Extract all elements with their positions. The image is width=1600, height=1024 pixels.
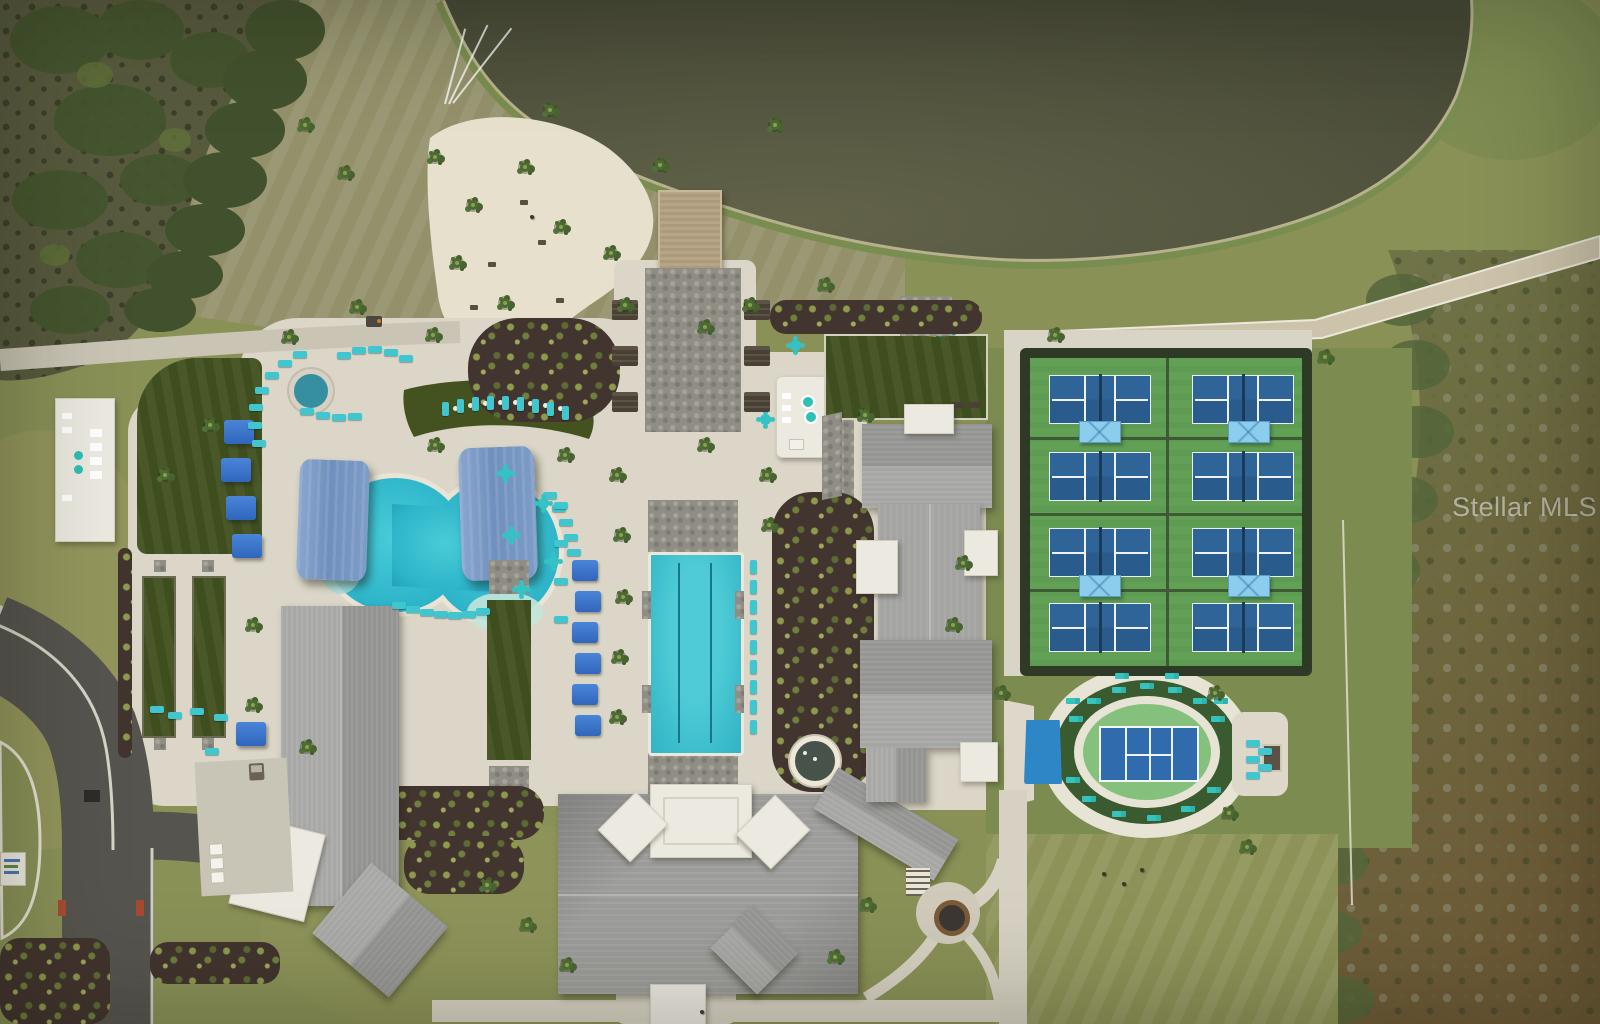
net-line (1099, 374, 1102, 425)
teal-lounger (476, 608, 490, 615)
stadium-seat (1069, 716, 1078, 722)
palm-tree (820, 280, 830, 290)
palm-tree (762, 470, 772, 480)
pickleball-court (1192, 452, 1294, 501)
lap-lane-line (710, 563, 712, 743)
kitchen-line (1227, 376, 1229, 423)
table-set (516, 584, 527, 595)
teal-lounger (502, 396, 509, 410)
teal-lounger (249, 404, 263, 411)
palm-tree (1242, 842, 1252, 852)
pool-daybed (572, 684, 598, 705)
center-line (1116, 399, 1148, 401)
palm-tree (830, 952, 840, 962)
teal-lounger (750, 580, 757, 594)
stadium-seat (1082, 796, 1091, 802)
rooftop-lounger (90, 457, 102, 465)
rooftop-umbrella (74, 465, 83, 474)
pool-daybed (575, 653, 601, 674)
teal-lounger (750, 680, 757, 694)
pavilion-lounger (782, 393, 791, 399)
stadium-seat (1066, 698, 1075, 704)
pickleball-court (1049, 603, 1151, 652)
roof-ridge (558, 894, 858, 896)
palm-tree (612, 470, 622, 480)
stadium-seat (1087, 698, 1096, 704)
equipment-unit (210, 857, 225, 870)
palm-tree (612, 712, 622, 722)
planter (202, 560, 214, 572)
teal-lounger (554, 502, 568, 509)
net-line (1099, 527, 1102, 578)
stadium-seat (1214, 698, 1223, 704)
teal-lounger (293, 351, 307, 358)
palm-tree (860, 410, 870, 420)
planter (154, 560, 166, 572)
pickleball-court (1192, 375, 1294, 424)
net-line (1242, 602, 1245, 653)
table-set (760, 414, 771, 425)
beach-chair (538, 240, 546, 245)
pickleball-court (1049, 375, 1151, 424)
pool-daybed (572, 560, 598, 581)
person (530, 215, 534, 219)
roof-ridge (929, 504, 931, 644)
palm-tree (862, 900, 872, 910)
palm-tree (248, 620, 258, 630)
center-line (1116, 627, 1148, 629)
plaza-chair (1258, 764, 1272, 771)
court-shade-canopy (1228, 575, 1270, 597)
court-shade-canopy (1228, 421, 1270, 443)
stadium-seat (1211, 716, 1220, 722)
teal-lounger (384, 349, 398, 356)
bar-pavilion (776, 376, 828, 458)
pickleball-court (1049, 528, 1151, 577)
equipment-unit (210, 871, 225, 884)
round-spa (289, 369, 333, 413)
planter (154, 738, 166, 750)
center-line (1259, 627, 1291, 629)
palm-tree (606, 248, 616, 258)
teal-lounger (554, 540, 568, 547)
service-cart (789, 439, 804, 450)
stadium-side-canopy (1024, 720, 1062, 784)
palm-tree (160, 470, 170, 480)
lawn-bench (968, 402, 980, 408)
teal-lounger (337, 352, 351, 359)
beach-chair (556, 298, 564, 303)
teal-lounger (532, 399, 539, 413)
teal-lounger (214, 714, 228, 721)
teal-lounger (150, 706, 164, 713)
palm-tree (745, 300, 755, 310)
palm-tree (430, 440, 440, 450)
court-divider (1030, 513, 1302, 516)
palm-tree (560, 450, 570, 460)
picnic-table (744, 392, 770, 412)
stadium-seat (1066, 777, 1075, 783)
stadium-seat (1147, 815, 1156, 821)
racquet-south-roof (860, 640, 992, 748)
paver-band (648, 500, 738, 552)
kitchen-line (1084, 453, 1086, 500)
palm-tree (468, 200, 478, 210)
palm-tree (352, 302, 362, 312)
palm-tree (428, 330, 438, 340)
center-line (1195, 399, 1227, 401)
person (1102, 872, 1106, 876)
teal-lounger (248, 422, 262, 429)
net-line (1242, 374, 1245, 425)
bar-table (801, 395, 815, 409)
event-lawn-south (986, 834, 1338, 1024)
teal-lounger (448, 612, 462, 619)
palm-tree (1224, 808, 1234, 818)
pool-daybed (575, 715, 601, 736)
teal-lounger (462, 611, 476, 618)
kitchen-line (1084, 604, 1086, 651)
person (700, 1010, 704, 1014)
teal-lounger (442, 402, 449, 416)
teal-lounger (457, 399, 464, 413)
table-set (790, 340, 801, 351)
lap-pool-step (735, 685, 744, 713)
table-set (506, 530, 517, 541)
picnic-table (612, 346, 638, 366)
beach-chair (488, 262, 496, 267)
net-line (1099, 451, 1102, 502)
person (1140, 868, 1144, 872)
teal-lounger (750, 720, 757, 734)
teal-lounger (190, 708, 204, 715)
rooftop-lounger (62, 413, 72, 419)
rooftop-terrace-building (55, 398, 115, 542)
rooftop-lounger (90, 429, 102, 437)
teal-lounger (750, 600, 757, 614)
stadium-court (1099, 726, 1199, 782)
plaza-chair (1246, 772, 1260, 779)
racquet-small-roof (866, 748, 926, 802)
teal-lounger (368, 346, 382, 353)
pool-cabana (226, 496, 256, 520)
rooftop-lounger (90, 443, 102, 451)
palm-tree (700, 440, 710, 450)
court-divider (1166, 358, 1169, 666)
pavilion-lounger (782, 417, 791, 423)
teal-lounger (750, 640, 757, 654)
pool-daybed (572, 622, 598, 643)
palm-tree (556, 222, 566, 232)
plaza-chair (1246, 756, 1260, 763)
lap-pool-step (735, 591, 744, 619)
palm-tree (545, 105, 555, 115)
center-line (1259, 476, 1291, 478)
palm-tree (430, 152, 440, 162)
teal-lounger (420, 609, 434, 616)
pool-daybed (575, 591, 601, 612)
kitchen-line (1227, 453, 1229, 500)
pool-cabana (221, 458, 251, 482)
bar-table (804, 410, 818, 424)
planting-bed (0, 938, 110, 1024)
vehicle-light (377, 319, 381, 323)
center-line (1195, 476, 1227, 478)
net-line (1242, 451, 1245, 502)
white-tower (856, 540, 898, 594)
teal-lounger (434, 611, 448, 618)
net-line (1099, 602, 1102, 653)
table-set (538, 498, 549, 509)
watermark: Stellar MLS (1452, 492, 1597, 523)
community-sign (0, 852, 26, 886)
palm-tree (618, 592, 628, 602)
rooftop-lounger (62, 427, 72, 433)
center-line (1259, 552, 1291, 554)
racquet-cupola (904, 404, 954, 434)
palm-tree (452, 258, 462, 268)
pool-cabana (236, 722, 266, 746)
teal-lounger (255, 387, 269, 394)
rooftop-lounger (62, 495, 72, 501)
white-tower (964, 530, 998, 576)
center-line (1195, 552, 1227, 554)
center-line (1052, 627, 1084, 629)
stadium-seat (1140, 683, 1149, 689)
dock-path (645, 268, 741, 432)
teal-lounger (750, 620, 757, 634)
palm-tree (482, 880, 492, 890)
teal-lounger (567, 549, 581, 556)
palm-tree (500, 298, 510, 308)
teal-lounger (750, 560, 757, 574)
pool-shade-sail (296, 459, 370, 581)
teal-lounger (332, 414, 346, 421)
stadium-seat (1115, 673, 1124, 679)
palm-tree (700, 322, 710, 332)
golf-cart (249, 763, 265, 781)
spa-bather (803, 751, 807, 755)
center-line (1116, 552, 1148, 554)
sign-text-line (4, 865, 18, 868)
maintenance-vehicle (366, 316, 382, 327)
pool-cabana (232, 534, 262, 558)
lap-lane-line (678, 563, 680, 743)
palm-tree (614, 652, 624, 662)
palm-tree (520, 162, 530, 172)
aerial-photo-amenity-campus: Stellar MLS (0, 0, 1600, 1024)
teal-lounger (554, 578, 568, 585)
golf-cart-top (251, 765, 262, 773)
beach-chair (470, 305, 478, 310)
palm-tree (522, 920, 532, 930)
teal-lounger (517, 397, 524, 411)
teal-lounger (406, 606, 420, 613)
equipment-unit (209, 843, 224, 856)
gravel-walk (822, 412, 842, 500)
teal-lounger (348, 413, 362, 420)
palm-tree (205, 420, 215, 430)
palm-tree (655, 160, 665, 170)
plaza-chair (1258, 748, 1272, 755)
picnic-table (612, 392, 638, 412)
cupola-detail (663, 797, 739, 845)
teal-lounger (750, 700, 757, 714)
teal-lounger (554, 616, 568, 623)
white-pavilion (960, 742, 998, 782)
palm-tree (1320, 352, 1330, 362)
palm-tree (248, 700, 258, 710)
roof-ridge (340, 606, 342, 906)
teal-lounger (278, 360, 292, 367)
center-line (1052, 399, 1084, 401)
teal-lounger (392, 602, 406, 609)
lap-pool-step (642, 591, 651, 619)
teal-lounger (399, 355, 413, 362)
teal-lounger (265, 372, 279, 379)
teal-lounger (487, 396, 494, 410)
stadium-seat (1112, 811, 1121, 817)
stadium-seat (1168, 687, 1177, 693)
palm-tree (948, 620, 958, 630)
center-line (1116, 476, 1148, 478)
event-lawn-northwest (137, 358, 262, 554)
palm-tree (1050, 330, 1060, 340)
palm-tree (958, 558, 968, 568)
lake-dock (658, 190, 722, 274)
palm-tree (302, 742, 312, 752)
rooftop-lounger (90, 471, 102, 479)
center-line (1195, 627, 1227, 629)
sign-text-line (4, 871, 19, 874)
stadium-seat (1181, 806, 1190, 812)
entry-tower-roof (650, 984, 706, 1024)
planting-bed (118, 548, 132, 758)
service-court (195, 758, 294, 897)
teal-lounger (352, 347, 366, 354)
palm-tree (562, 960, 572, 970)
pavilion-lounger (782, 405, 791, 411)
plaza-chair (1246, 740, 1260, 747)
stadium-seat (1207, 787, 1216, 793)
table-set (500, 468, 511, 479)
teal-lounger (559, 519, 573, 526)
kitchen-line (1084, 376, 1086, 423)
stadium-seat (1112, 687, 1121, 693)
palm-tree (340, 168, 350, 178)
court-shade-canopy (1079, 421, 1121, 443)
stadium-seat (1193, 698, 1202, 704)
planting-bed (404, 836, 524, 894)
teal-lounger (316, 412, 330, 419)
kitchen-line (1227, 604, 1229, 651)
palm-tree (770, 120, 780, 130)
planting-bed (770, 300, 982, 334)
palm-tree (300, 120, 310, 130)
teal-lounger (750, 660, 757, 674)
pickleball-court (1049, 452, 1151, 501)
palm-tree (284, 332, 294, 342)
turf-strip (487, 600, 531, 760)
kitchen-line (1227, 529, 1229, 576)
fire-pit (934, 900, 970, 936)
table-set (548, 556, 559, 567)
spa-bather (813, 757, 817, 761)
teal-lounger (205, 748, 219, 755)
planting-bed (150, 942, 280, 984)
teal-lounger (252, 440, 266, 447)
picnic-table (744, 346, 770, 366)
palm-tree (1210, 688, 1220, 698)
teal-lounger (547, 402, 554, 416)
racquet-building-roof (862, 424, 992, 508)
pickleball-court (1192, 603, 1294, 652)
teal-lounger (168, 712, 182, 719)
sign-text-line (4, 859, 20, 862)
lap-pool-step (642, 685, 651, 713)
beach-chair (520, 200, 528, 205)
teal-lounger (300, 408, 314, 415)
palm-tree (616, 530, 626, 540)
court-line (1125, 754, 1173, 756)
lap-pool (648, 552, 744, 756)
palm-tree (996, 688, 1006, 698)
teal-lounger (562, 406, 569, 420)
palm-tree (620, 300, 630, 310)
net-line (1242, 527, 1245, 578)
center-line (1052, 552, 1084, 554)
center-line (1052, 476, 1084, 478)
center-line (1259, 399, 1291, 401)
teal-lounger (472, 397, 479, 411)
pickleball-court (1192, 528, 1294, 577)
palm-tree (764, 520, 774, 530)
rooftop-umbrella (74, 451, 83, 460)
stadium-seat (1165, 673, 1174, 679)
person (1122, 882, 1126, 886)
court-shade-canopy (1079, 575, 1121, 597)
kitchen-line (1084, 529, 1086, 576)
